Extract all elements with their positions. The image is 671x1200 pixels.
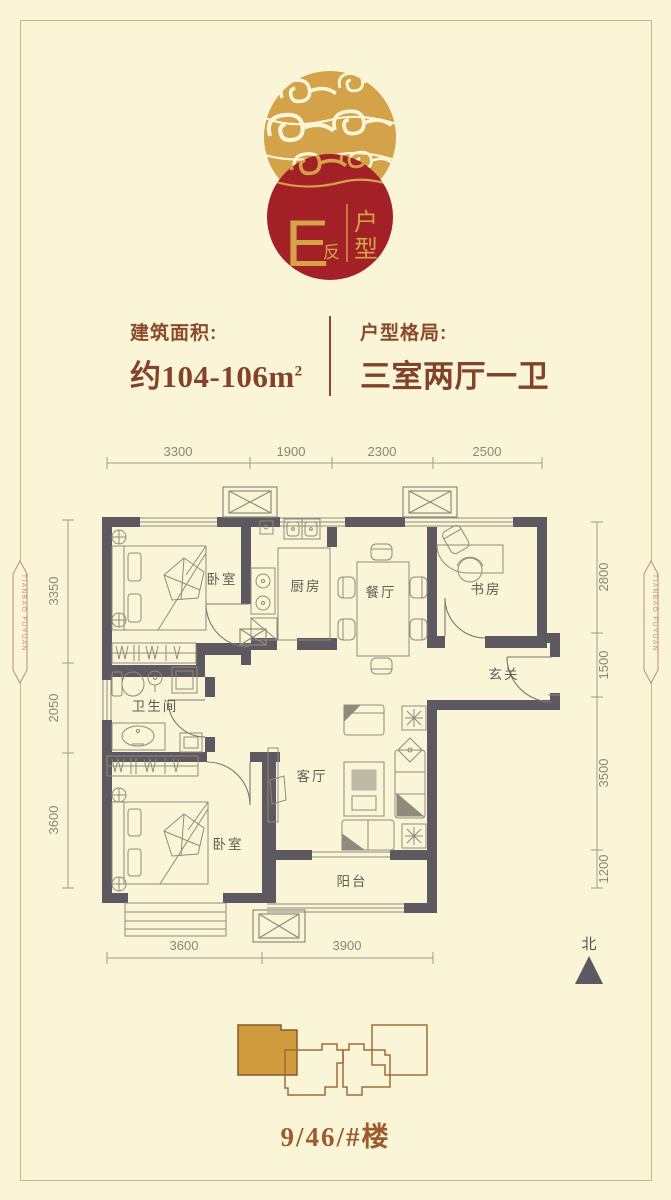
dim-bottom-1: 3600 <box>170 938 199 953</box>
dim-bottom-2: 3900 <box>333 938 362 953</box>
bay-window <box>125 903 226 936</box>
dim-left-3: 3600 <box>46 806 61 835</box>
label-dining: 餐厅 <box>366 585 397 600</box>
north-label: 北 <box>581 936 596 953</box>
label-bathroom: 卫生间 <box>132 699 179 714</box>
north-arrow: 北 <box>575 936 603 984</box>
layout-value: 三室两厅一卫 <box>360 351 549 396</box>
label-living: 客厅 <box>297 768 328 784</box>
dim-right-1: 2800 <box>596 563 611 592</box>
dim-top-3: 2300 <box>368 444 397 459</box>
dim-top-2: 1900 <box>277 444 306 459</box>
logo-letter-suffix: 反 <box>323 243 340 262</box>
dim-right-3: 3500 <box>596 759 611 788</box>
area-value: 约104-106m2 <box>130 351 303 396</box>
label-bedroom-top: 卧室 <box>207 571 238 587</box>
bed-bottom <box>112 788 208 891</box>
building-number: 9/46/#楼 <box>0 1115 671 1154</box>
shaft-top-right <box>403 487 457 517</box>
window-top-study <box>405 517 513 527</box>
window-top-bedroom <box>140 517 217 527</box>
closet-top <box>112 643 196 663</box>
dim-top-4: 2500 <box>473 444 502 459</box>
label-bedroom-bottom: 卧室 <box>213 836 244 852</box>
dining-set <box>338 544 427 674</box>
label-kitchen: 厨房 <box>291 579 322 594</box>
balcony-window <box>267 904 404 912</box>
study-furniture <box>437 524 503 582</box>
shaft-top-left <box>223 487 277 517</box>
dim-top-1: 3300 <box>164 444 193 459</box>
unit-type-logo: E 反 户 型 <box>230 58 430 293</box>
dim-right-2: 1500 <box>596 651 611 680</box>
floorplan-page: TIANBAO FUYUAN TIANBAO FUYUAN <box>0 0 671 1200</box>
site-unit-3 <box>343 1044 390 1095</box>
label-entry: 玄关 <box>489 666 520 682</box>
logo-char-hu: 户 <box>354 209 378 236</box>
door-bedroom-top <box>206 604 249 647</box>
dim-left-1: 3350 <box>46 577 61 606</box>
floorplan-drawing: 3300 1900 2300 2500 3350 2050 3600 2800 … <box>0 440 671 1015</box>
window-bathroom <box>102 680 112 720</box>
door-bedroom-bottom <box>207 762 250 805</box>
door-study <box>445 598 485 638</box>
logo-char-xing: 型 <box>354 236 378 263</box>
info-divider <box>329 316 331 396</box>
layout-label: 户型格局: <box>360 318 549 345</box>
windows <box>102 517 560 936</box>
site-key-plan <box>0 1012 671 1112</box>
shaft-bottom <box>253 910 305 942</box>
bed-top <box>112 530 206 630</box>
info-band: 建筑面积: 约104-106m2 户型格局: 三室两厅一卫 <box>0 312 671 407</box>
dim-left-2: 2050 <box>46 694 61 723</box>
living-furniture <box>268 705 426 857</box>
dim-right-4: 1200 <box>596 855 611 884</box>
label-study: 书房 <box>471 582 502 597</box>
label-balcony: 阳台 <box>337 874 368 889</box>
area-label: 建筑面积: <box>130 318 303 345</box>
